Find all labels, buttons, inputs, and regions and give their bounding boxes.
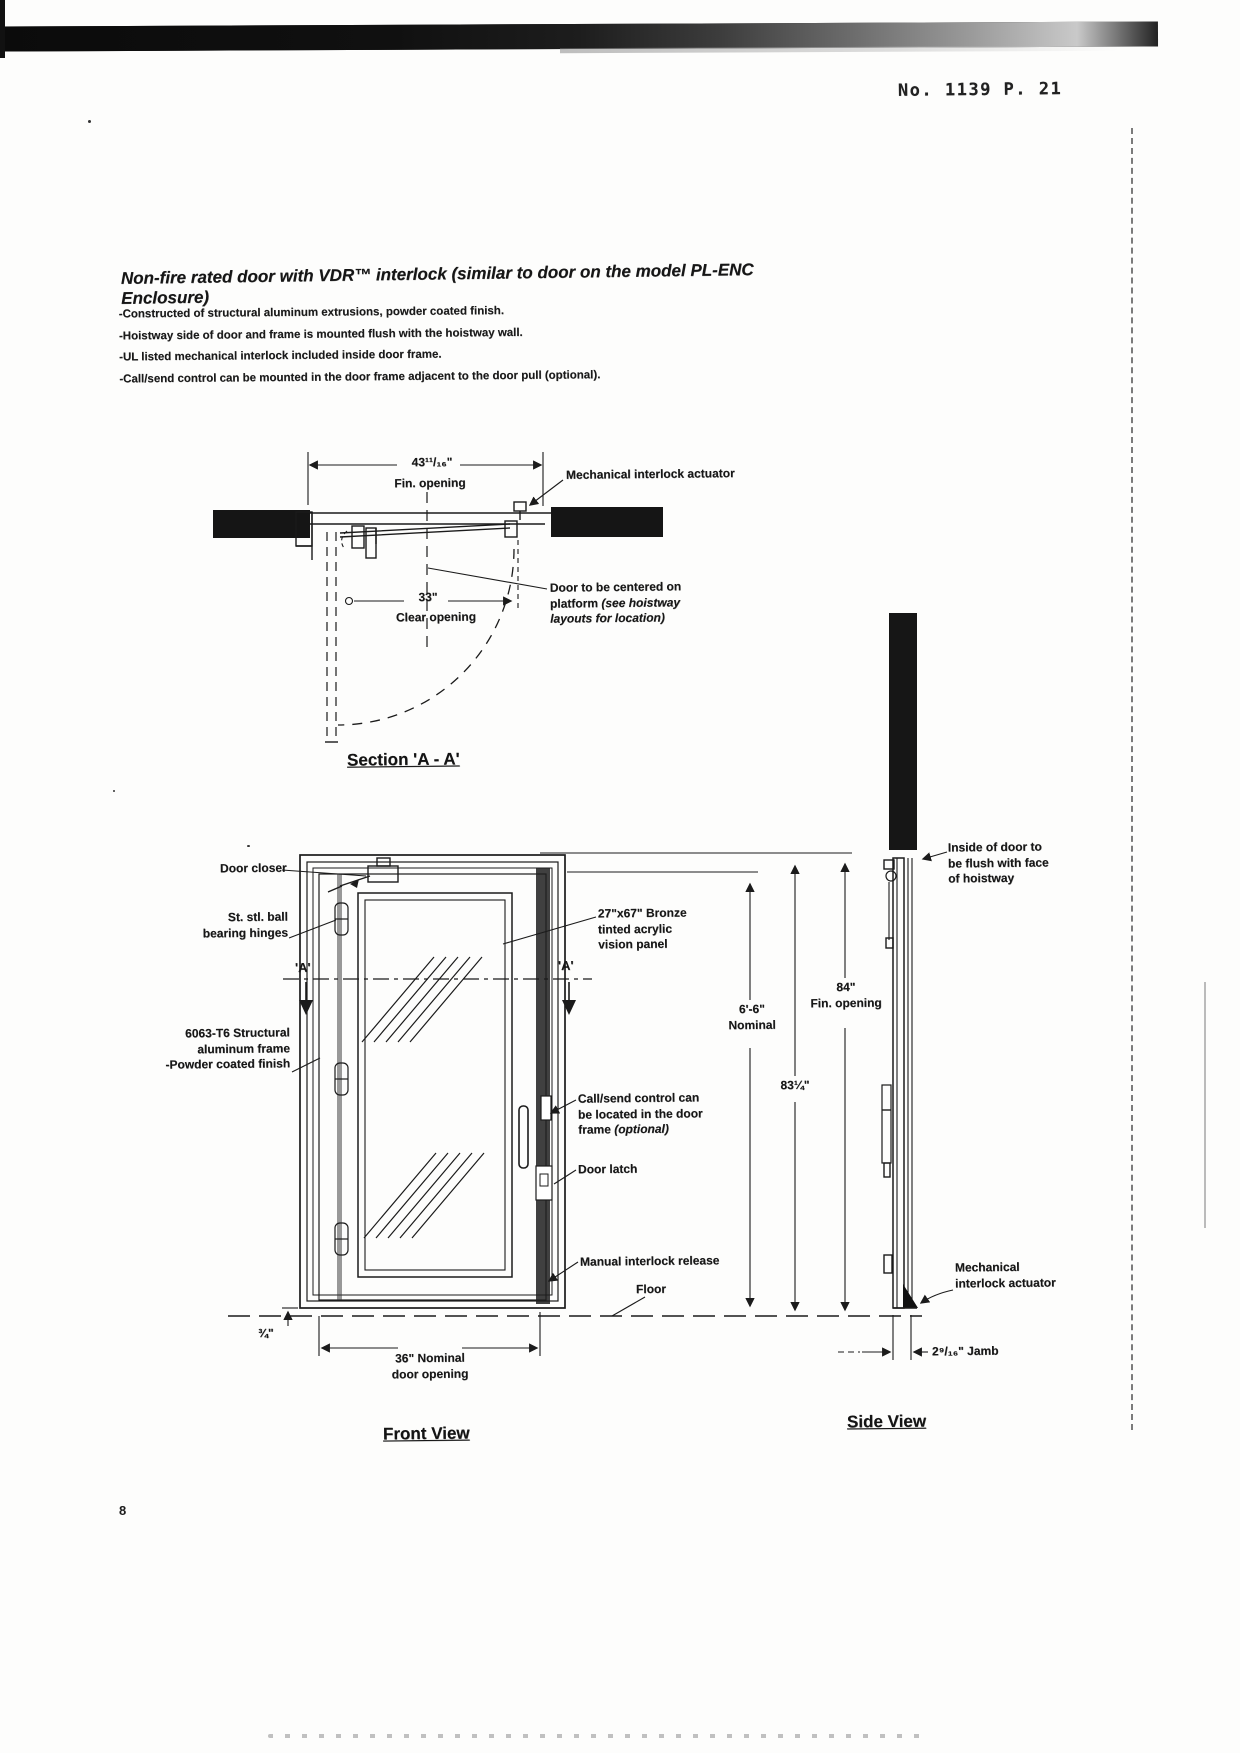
door-centered-line2-italic: (see hoistway	[601, 595, 680, 610]
frame-material-line2: aluminum frame	[197, 1041, 290, 1056]
dim-jamb	[838, 1315, 928, 1360]
door-opening-line1: 36" Nominal	[395, 1351, 465, 1366]
door-centered-line3-italic: layouts for location)	[550, 611, 665, 626]
side-fin-opening-line2: Fin. opening	[810, 995, 881, 1010]
call-send-line3: frame	[578, 1122, 614, 1136]
side-interlock-callout: Mechanical interlock actuator	[955, 1259, 1056, 1291]
page-number: 8	[119, 1503, 126, 1518]
front-view-drawing	[282, 853, 852, 1356]
clear-opening-sub-label: Clear opening	[390, 610, 482, 627]
call-send-label: Call/send control can be located in the …	[578, 1090, 703, 1138]
manual-release-label: Manual interlock release	[580, 1253, 720, 1270]
flush-callout: Inside of door to be flush with face of …	[948, 839, 1049, 887]
nominal-height-line1: 6'-6"	[739, 1002, 765, 1016]
side-interlock-line2: interlock actuator	[955, 1275, 1056, 1290]
door-centered-callout: Door to be centered on platform (see hoi…	[550, 579, 682, 627]
vision-panel-line1: 27"x67" Bronze	[598, 906, 687, 921]
fax-document-page: No. 1139 P. 21 Non-fire rated door with …	[0, 0, 1240, 1753]
hinges-line2: bearing hinges	[203, 925, 289, 940]
section-marker-a-left: 'A'	[295, 960, 311, 977]
call-send-control	[541, 1096, 551, 1120]
dim-door-opening	[319, 1312, 540, 1356]
door-closer-label: Door closer	[220, 861, 287, 877]
door-latch-label: Door latch	[578, 1162, 638, 1178]
flush-line3: of hoistway	[948, 871, 1014, 886]
side-view-caption: Side View	[847, 1412, 926, 1433]
fin-opening-width-dim-label: 43¹¹/₁₆"	[396, 455, 468, 471]
side-interlock-line1: Mechanical	[955, 1260, 1020, 1275]
flush-line1: Inside of door to	[948, 840, 1042, 855]
door-pull	[519, 1106, 528, 1168]
door-opening-dim-label: 36" Nominal door opening	[370, 1350, 490, 1382]
call-send-line1: Call/send control can	[578, 1090, 699, 1105]
fin-opening-width-sub-label: Fin. opening	[388, 476, 472, 492]
clear-opening-dim-label: 33"	[406, 590, 450, 606]
jamb-dim-label: 2⁹/₁₆" Jamb	[932, 1344, 999, 1360]
side-fin-opening-line1: 84"	[836, 980, 855, 994]
interlock-actuator-callout: Mechanical interlock actuator	[566, 466, 735, 483]
door-centered-line2: platform	[550, 596, 601, 611]
door-opening-line2: door opening	[392, 1366, 469, 1381]
door-latch-hw	[536, 1166, 552, 1200]
floor-label: Floor	[636, 1282, 666, 1298]
vision-panel-label: 27"x67" Bronze tinted acrylic vision pan…	[598, 906, 687, 954]
call-send-line2: be located in the door	[578, 1106, 703, 1121]
frame-material-line3: -Powder coated finish	[165, 1056, 290, 1071]
nominal-height-line2: Nominal	[728, 1017, 775, 1031]
nominal-height-label: 6'-6" Nominal	[722, 1002, 782, 1034]
hinges-line1: St. stl. ball	[228, 910, 288, 925]
dim-bottom-offset	[282, 1308, 298, 1326]
frame-material-line1: 6063-T6 Structural	[185, 1025, 290, 1040]
section-view-caption: Section 'A - A'	[347, 749, 460, 770]
hinges-label: St. stl. ball bearing hinges	[200, 910, 288, 942]
side-fin-opening-label: 84" Fin. opening	[805, 980, 887, 1012]
glass-hatching	[362, 957, 484, 1238]
call-send-line3-italic: (optional)	[614, 1122, 669, 1137]
bottom-offset-dim-label: ¾"	[258, 1326, 274, 1342]
section-marker-a-right: 'A'	[558, 958, 574, 975]
vision-panel-line2: tinted acrylic	[598, 921, 672, 936]
front-view-caption: Front View	[383, 1424, 470, 1445]
flush-line2: be flush with face	[948, 855, 1049, 870]
technical-drawing	[0, 0, 1240, 1753]
door-centered-line1: Door to be centered on	[550, 579, 681, 594]
frame-material-label: 6063-T6 Structural aluminum frame -Powde…	[158, 1025, 290, 1073]
frame-height-dim-label: 83¼"	[770, 1078, 820, 1094]
vision-panel-line3: vision panel	[598, 937, 668, 952]
